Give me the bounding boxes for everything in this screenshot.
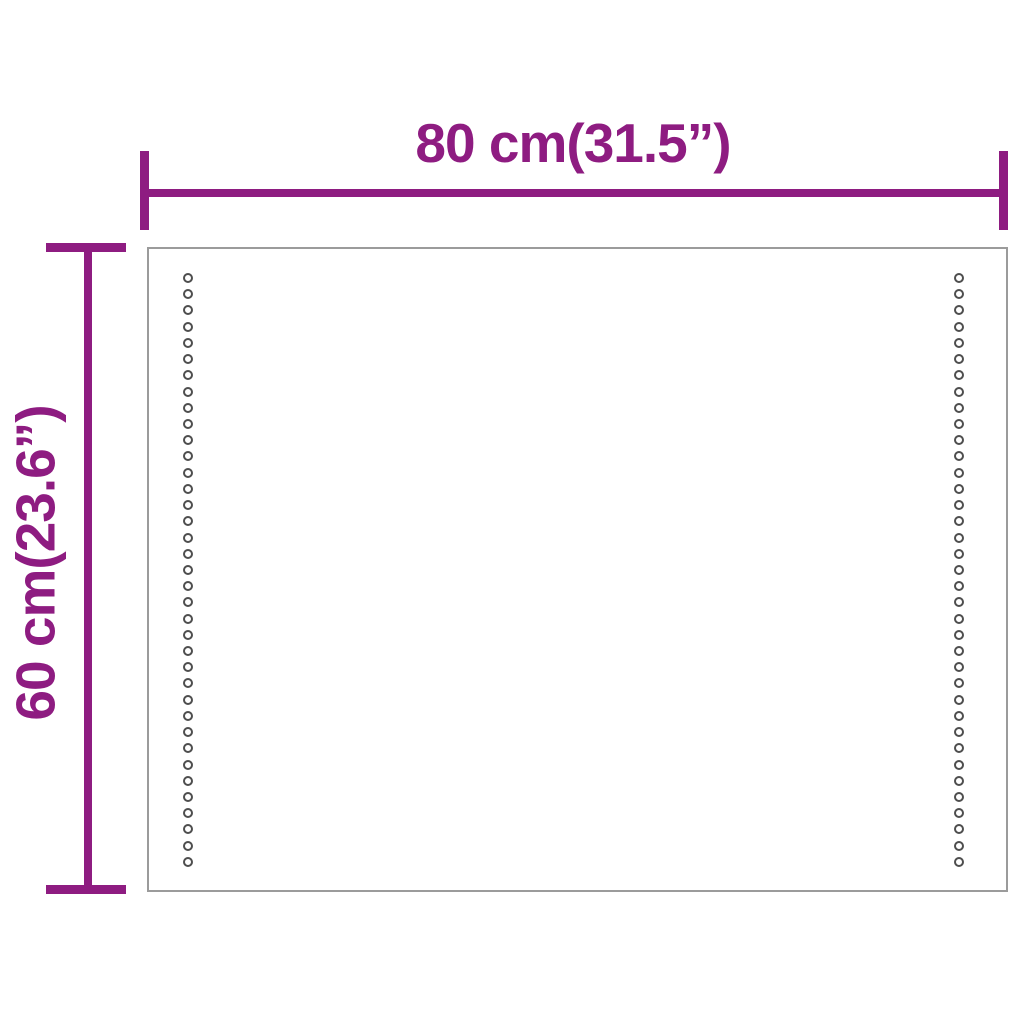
led-dot (183, 808, 193, 818)
led-dot (183, 841, 193, 851)
led-dot (954, 516, 964, 526)
led-dot (183, 597, 193, 607)
led-dot (183, 711, 193, 721)
led-dot (183, 549, 193, 559)
led-dot (183, 387, 193, 397)
led-dot (183, 824, 193, 834)
led-dot (183, 484, 193, 494)
led-dot (183, 646, 193, 656)
height-dimension-cap-bottom (46, 885, 126, 894)
led-dot (183, 792, 193, 802)
led-dot (183, 614, 193, 624)
led-dot (954, 662, 964, 672)
led-dot (183, 354, 193, 364)
led-dot (954, 273, 964, 283)
led-dot (183, 500, 193, 510)
product-dimension-diagram: 80 cm(31.5”) 60 cm(23.6”) (0, 0, 1024, 1024)
led-dot (183, 435, 193, 445)
led-dot (183, 468, 193, 478)
width-dimension-cap-right (999, 151, 1008, 230)
led-dot (954, 435, 964, 445)
led-dot (183, 727, 193, 737)
led-dot (954, 305, 964, 315)
led-dot (954, 370, 964, 380)
led-dot (183, 630, 193, 640)
led-dot (183, 338, 193, 348)
led-dot (954, 857, 964, 867)
height-dimension-cap-top (46, 243, 126, 252)
width-dimension-line (143, 189, 1004, 197)
led-dot (183, 451, 193, 461)
led-dot (954, 646, 964, 656)
led-dot (954, 500, 964, 510)
led-dot (183, 370, 193, 380)
led-dot (954, 678, 964, 688)
led-dot (183, 776, 193, 786)
led-dot (954, 565, 964, 575)
led-dot (183, 743, 193, 753)
led-dot (954, 468, 964, 478)
led-dot (954, 533, 964, 543)
height-dimension-label: 60 cm(23.6”) (9, 405, 64, 720)
led-dot (954, 776, 964, 786)
led-dot (954, 322, 964, 332)
led-dot (183, 516, 193, 526)
led-dot (954, 403, 964, 413)
led-dot (954, 792, 964, 802)
led-dot (954, 419, 964, 429)
led-dot (954, 338, 964, 348)
led-dot (954, 484, 964, 494)
led-dot (954, 354, 964, 364)
led-dot (954, 824, 964, 834)
height-dimension-line (84, 247, 92, 890)
led-dot (183, 322, 193, 332)
led-dot (183, 273, 193, 283)
width-dimension-cap-left (140, 151, 149, 230)
led-dot (183, 305, 193, 315)
led-dot (183, 857, 193, 867)
led-dot (954, 808, 964, 818)
led-dot (183, 403, 193, 413)
led-dot (183, 678, 193, 688)
led-dot (954, 711, 964, 721)
led-dot (183, 419, 193, 429)
led-dot (954, 630, 964, 640)
led-dot (954, 289, 964, 299)
led-dot-column-right (954, 273, 964, 867)
led-dot (954, 841, 964, 851)
led-dot (954, 743, 964, 753)
led-dot (183, 662, 193, 672)
led-dot (954, 451, 964, 461)
led-dot (183, 695, 193, 705)
led-dot (954, 727, 964, 737)
led-dot (954, 549, 964, 559)
led-dot (183, 581, 193, 591)
led-dot-column-left (183, 273, 193, 867)
led-dot (183, 289, 193, 299)
led-dot (183, 565, 193, 575)
led-dot (954, 387, 964, 397)
mirror-panel (147, 247, 1008, 892)
led-dot (183, 533, 193, 543)
led-dot (954, 614, 964, 624)
led-dot (954, 581, 964, 591)
led-dot (183, 760, 193, 770)
led-dot (954, 695, 964, 705)
led-dot (954, 760, 964, 770)
width-dimension-label: 80 cm(31.5”) (415, 116, 730, 171)
led-dot (954, 597, 964, 607)
